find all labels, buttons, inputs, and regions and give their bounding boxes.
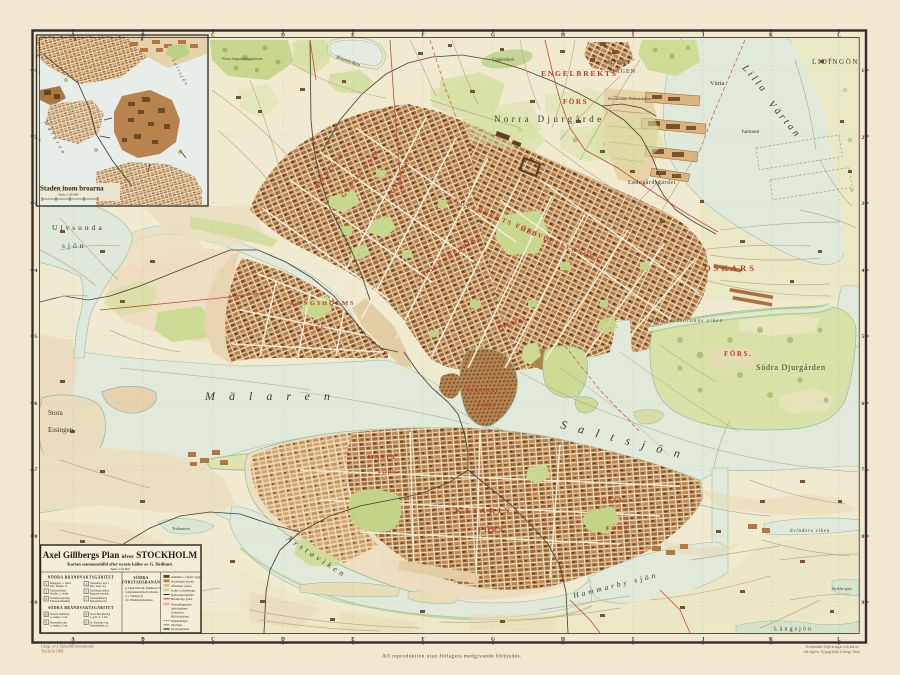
svg-text:H: H (561, 32, 565, 38)
svg-text:FÖRS: FÖRS (378, 469, 397, 476)
svg-text:G: G (491, 637, 495, 643)
svg-text:K: K (769, 637, 773, 643)
svg-text:B: B (141, 637, 145, 643)
svg-text:F: F (421, 32, 424, 38)
svg-text:1: 1 (862, 68, 865, 74)
svg-text:Svinders viken: Svinders viken (790, 529, 830, 534)
svg-text:B: B (141, 32, 145, 38)
svg-text:3: 3 (862, 201, 865, 207)
svg-text:6: 6 (35, 401, 38, 407)
svg-text:4: 4 (35, 268, 38, 274)
svg-text:4: 4 (85, 582, 87, 586)
svg-text:OSKARS: OSKARS (704, 263, 757, 273)
svg-text:Djurgården stn: Djurgården stn (90, 600, 107, 603)
svg-text:FÖRS: FÖRS (304, 325, 326, 332)
svg-text:L: L (837, 637, 841, 643)
svg-text:Kartan sammanställd efter nyas: Kartan sammanställd efter nyaste källor … (67, 562, 173, 567)
svg-text:Ulvsunda: Ulvsunda (52, 223, 105, 232)
svg-text:FÖRS: FÖRS (478, 526, 505, 534)
svg-text:Allmänna o offentl. byggn.: Allmänna o offentl. byggn. (171, 575, 203, 579)
svg-text:KATARINA: KATARINA (455, 506, 522, 515)
svg-text:Skala 1:16 000: Skala 1:16 000 (110, 567, 130, 571)
svg-text:3: 3 (45, 597, 47, 601)
svg-text:5: 5 (35, 334, 38, 340)
svg-text:FÖRS: FÖRS (563, 98, 588, 106)
svg-text:Stora: Stora (48, 409, 64, 417)
svg-text:D: D (281, 637, 285, 643)
svg-text:L: L (837, 32, 841, 38)
svg-text:hd f. brandk. st.: hd f. brandk. st. (50, 585, 68, 588)
svg-text:7: 7 (35, 467, 38, 473)
svg-text:Djurgårdsbrunns viken: Djurgårdsbrunns viken (651, 318, 723, 324)
svg-text:J: J (702, 32, 705, 38)
svg-text:Litogr. av J. Eklundhs konstan: Litogr. av J. Eklundhs konstanstalt (41, 645, 94, 649)
svg-text:Kvartersgränser: Kvartersgränser (171, 627, 189, 631)
svg-text:4: 4 (862, 268, 865, 274)
svg-text:NIKOLAI: NIKOLAI (466, 388, 499, 394)
svg-text:o. stadsg. f. brn: o. stadsg. f. brn (50, 616, 68, 619)
svg-text:FÖRSTADSBANAN: FÖRSTADSBANAN (122, 580, 161, 585)
svg-text:Rosenlundsg. st.: Rosenlundsg. st. (90, 625, 109, 628)
svg-text:2: 2 (862, 135, 865, 141)
svg-text:1: 1 (45, 582, 47, 586)
svg-text:A: A (71, 637, 75, 643)
svg-text:LIDINGÖN: LIDINGÖN (812, 58, 859, 66)
svg-text:sjön: sjön (62, 241, 87, 250)
svg-text:ENGELBREKTS: ENGELBREKTS (541, 69, 618, 78)
svg-text:KUNGSHOLMS: KUNGSHOLMS (290, 300, 355, 307)
svg-text:HJORT: HJORT (608, 60, 631, 66)
svg-text:9: 9 (35, 600, 38, 606)
svg-text:2: 2 (35, 135, 38, 141)
svg-text:Sickla sjön: Sickla sjön (832, 586, 852, 591)
svg-text:Stadsplaneområden: Stadsplaneområden (171, 593, 194, 597)
svg-text:9: 9 (862, 600, 865, 606)
svg-text:hamnen: hamnen (742, 129, 760, 135)
svg-text:FÖRS: FÖRS (477, 402, 496, 409)
svg-text:Staden inom broarna: Staden inom broarna (40, 185, 104, 193)
svg-text:d) t. Hammarbyhamnen: d) t. Hammarbyhamnen (125, 598, 153, 602)
svg-text:vid utgivn. Typografisk Lönegr: vid utgivn. Typografisk Lönegr. Anst. (803, 650, 860, 654)
svg-text:Skala 1:30 000: Skala 1:30 000 (58, 193, 79, 197)
svg-text:Parker o planteringar: Parker o planteringar (171, 588, 195, 592)
svg-text:D: D (281, 32, 285, 38)
svg-text:9: 9 (45, 621, 47, 625)
svg-text:Axel Gillbergs Plan öfver STOC: Axel Gillbergs Plan öfver STOCKHOLM (43, 550, 198, 560)
svg-text:NÖDRA BRÄNDVAKTSGÄBITET: NÖDRA BRÄNDVAKTSGÄBITET (48, 575, 115, 580)
svg-text:Tryckt år 1905: Tryckt år 1905 (41, 649, 64, 654)
svg-text:All reproduktion utan förlaget: All reproduktion utan förlagets medgivan… (382, 653, 522, 660)
svg-text:F: F (421, 637, 424, 643)
svg-text:SÖDRA: SÖDRA (133, 575, 148, 580)
svg-text:Eriksson Munkbg: Eriksson Munkbg (50, 600, 71, 603)
svg-text:6: 6 (862, 401, 865, 407)
svg-text:8: 8 (85, 613, 87, 617)
svg-text:Privatbygda kvarter: Privatbygda kvarter (171, 579, 194, 583)
svg-text:o. priv. st. f. brn: o. priv. st. f. brn (90, 616, 108, 619)
svg-text:5: 5 (85, 590, 87, 594)
svg-text:SOFIA: SOFIA (596, 497, 624, 504)
svg-text:J: J (702, 637, 705, 643)
svg-text:hd f. lasar. sta.: hd f. lasar. sta. (90, 585, 106, 588)
svg-text:Norra begrafningsplatsen: Norra begrafningsplatsen (222, 56, 263, 61)
svg-text:Mälaren: Mälaren (204, 389, 344, 403)
svg-text:10: 10 (45, 613, 49, 617)
svg-text:E: E (351, 637, 355, 643)
svg-text:Häradsvägs. gräns: Häradsvägs. gräns (171, 597, 193, 601)
svg-text:Norra Djurgårde: Norra Djurgårde (494, 114, 605, 124)
svg-text:Uggleviken: Uggleviken (492, 58, 514, 63)
svg-text:Rappens område: Rappens område (90, 593, 109, 596)
svg-text:försäkr. o. byrån: försäkr. o. byrån (50, 593, 69, 596)
svg-text:Värta: Värta (710, 80, 725, 87)
svg-text:3: 3 (35, 201, 38, 207)
svg-text:FÖRS: FÖRS (606, 525, 629, 532)
svg-text:H: H (561, 637, 565, 643)
svg-text:G: G (491, 32, 495, 38)
svg-text:Offentliga verken: Offentliga verken (171, 584, 192, 588)
svg-text:8: 8 (35, 534, 38, 540)
svg-text:MARIA: MARIA (368, 455, 396, 461)
svg-text:C: C (211, 637, 215, 643)
svg-text:I: I (632, 637, 634, 643)
svg-text:Långsjön: Långsjön (774, 626, 813, 633)
svg-text:E: E (351, 32, 355, 38)
svg-text:Stockholms Elektricitetsv.: Stockholms Elektricitetsv. (608, 96, 652, 101)
svg-text:2: 2 (45, 590, 47, 594)
svg-text:o. stadsg. f. brn: o. stadsg. f. brn (50, 625, 68, 628)
svg-text:5: 5 (862, 334, 865, 340)
svg-text:SÖDRA BRÄNDVAKTSGÄBITET: SÖDRA BRÄNDVAKTSGÄBITET (48, 605, 114, 610)
svg-text:A: A (71, 32, 75, 38)
svg-text:I: I (632, 32, 634, 38)
svg-text:Trekanten: Trekanten (172, 526, 191, 531)
svg-text:Essingen: Essingen (48, 426, 74, 434)
svg-text:K: K (769, 32, 773, 38)
svg-text:Södra Djurgården: Södra Djurgården (756, 363, 826, 372)
svg-text:7: 7 (85, 597, 87, 601)
svg-text:8: 8 (862, 534, 865, 540)
svg-text:6: 6 (85, 621, 87, 625)
svg-text:7: 7 (862, 467, 865, 473)
svg-text:1: 1 (35, 68, 38, 74)
svg-text:C: C (211, 32, 215, 38)
svg-text:Teckensnitt följa kringar och: Teckensnitt följa kringar och kartor (805, 645, 859, 649)
svg-text:Ladugårdsgärdet: Ladugårdsgärdet (628, 179, 676, 186)
svg-text:FÖRS.: FÖRS. (724, 350, 752, 358)
